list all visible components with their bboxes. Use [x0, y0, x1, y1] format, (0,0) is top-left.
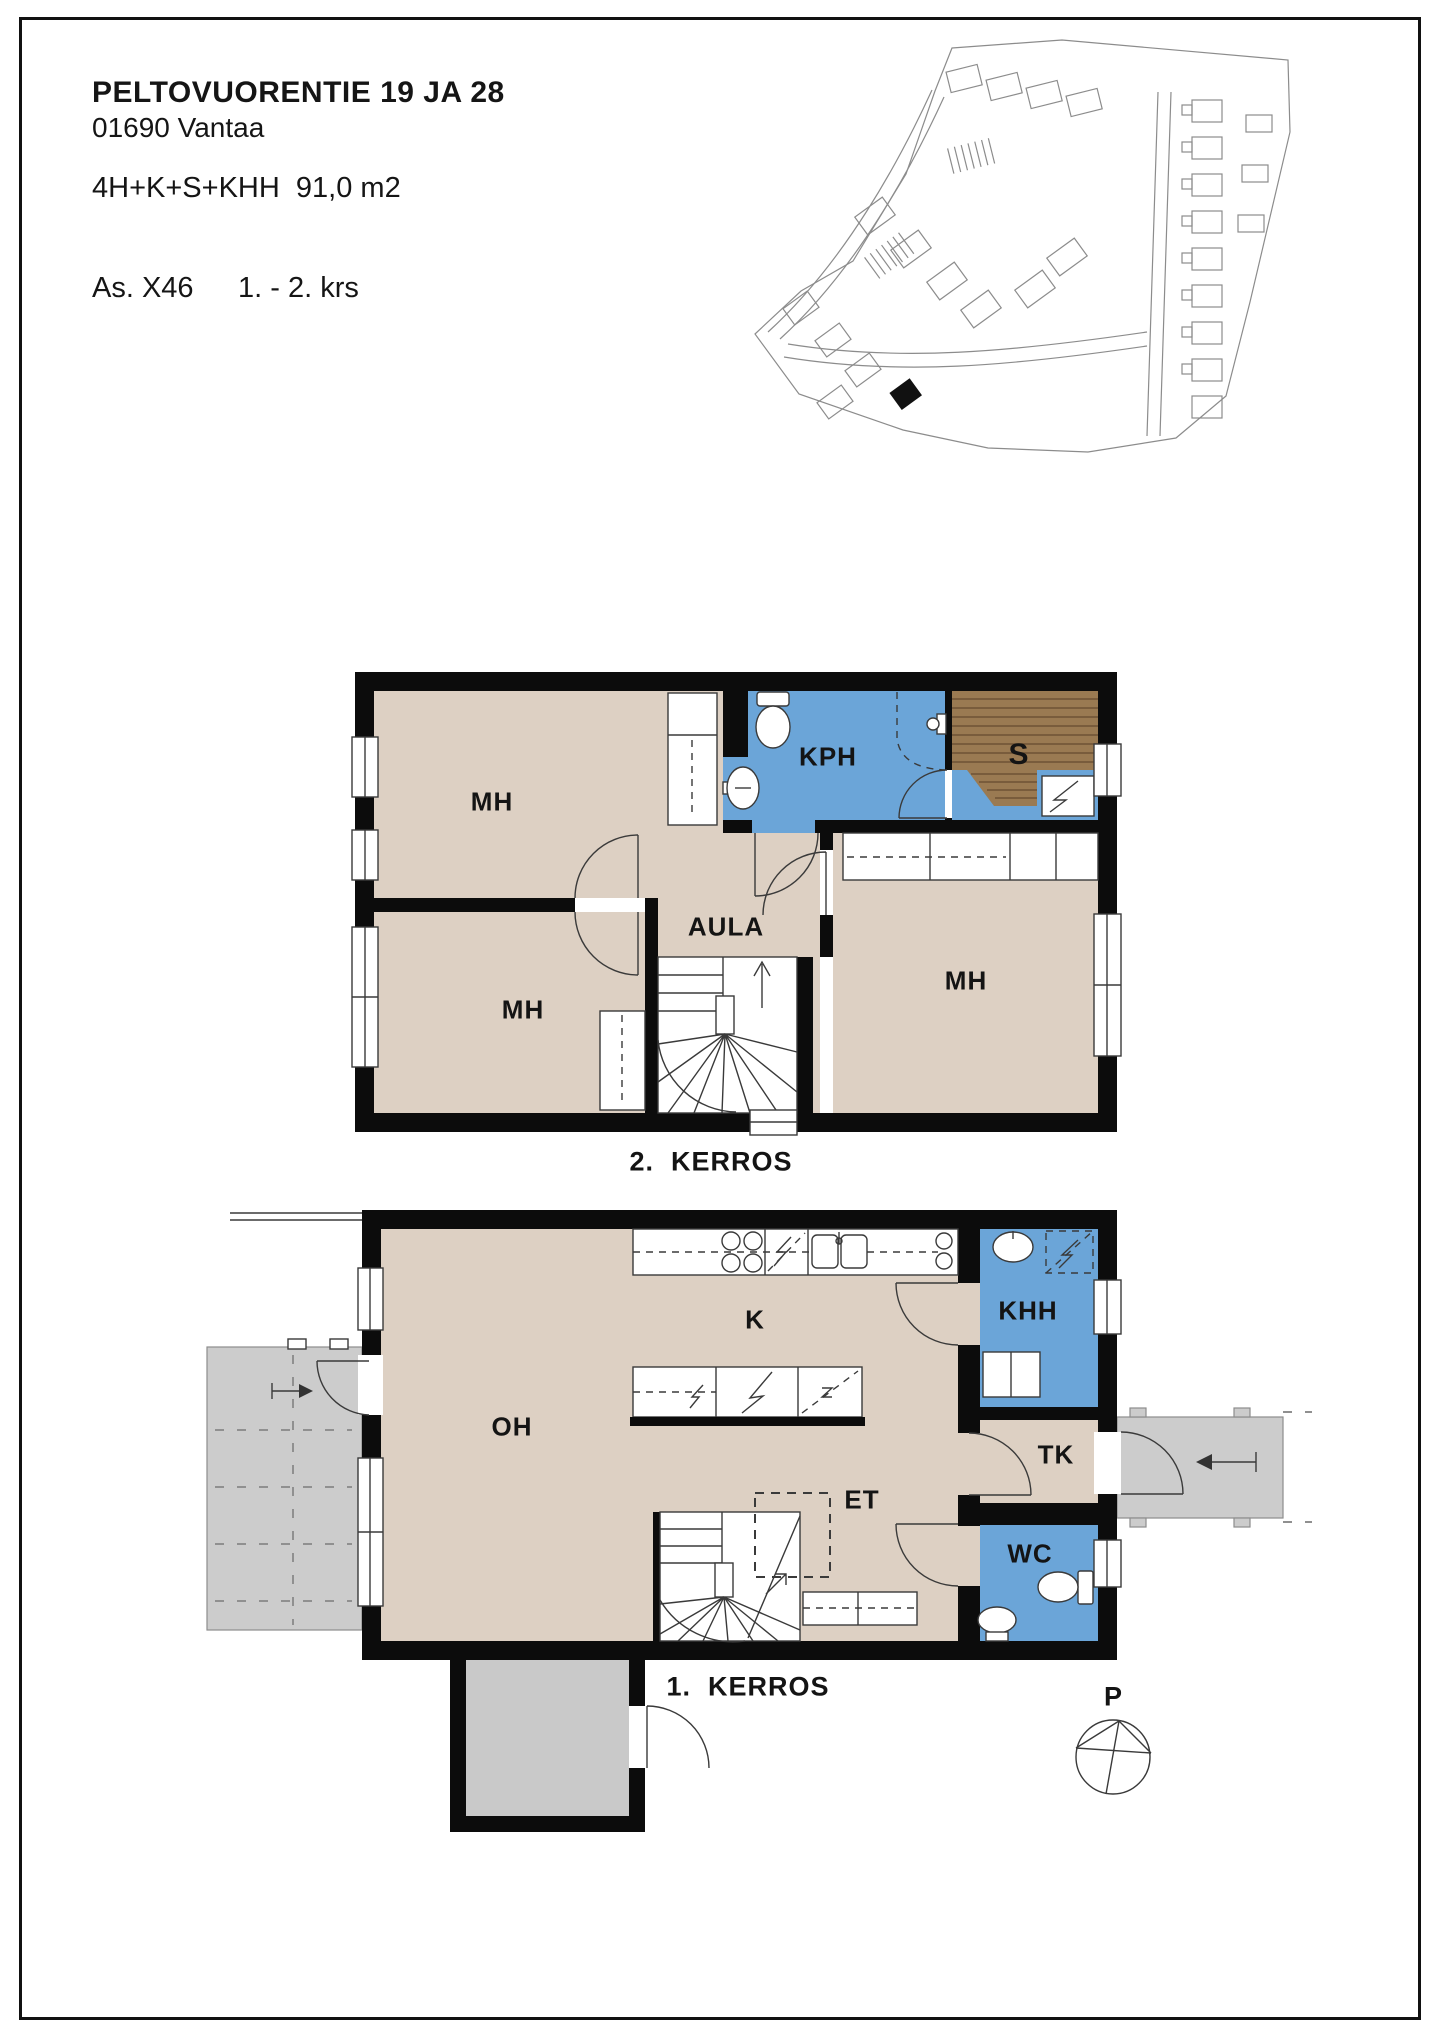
room-label-mh-top: MH [471, 787, 513, 818]
room-label-oh: OH [492, 1412, 533, 1443]
floorplan-1st-floor [207, 1210, 1312, 1832]
room-label-sauna: S [1008, 738, 1029, 772]
entrance-porch [1117, 1408, 1312, 1527]
khh-cabinet [983, 1352, 1040, 1397]
terrace [207, 1339, 362, 1630]
room-label-mh-right: MH [945, 966, 987, 997]
parking-rows-2 [865, 233, 914, 279]
staircase-icon-2f [658, 957, 797, 1113]
compass-icon [1076, 1720, 1151, 1794]
floor-plan-graphics [0, 0, 1440, 2037]
room-label-mh-bottom: MH [502, 995, 544, 1026]
site-map [755, 40, 1290, 452]
sauna-heater-icon [1042, 776, 1094, 816]
room-label-k: K [745, 1305, 765, 1336]
storage-room [450, 1641, 709, 1832]
et-cabinet [803, 1592, 917, 1625]
floorplan-2nd-floor [352, 672, 1121, 1135]
compass-north-label: P [1104, 1682, 1122, 1713]
kitchen-island [630, 1367, 865, 1426]
toilet-icon-2f [756, 692, 790, 748]
khh-sink-icon [993, 1231, 1033, 1262]
room-label-wc: WC [1007, 1539, 1052, 1570]
room-label-aula: AULA [688, 912, 764, 943]
floorplan-document-page: PELTOVUORENTIE 19 JA 28 01690 Vantaa 4H+… [0, 0, 1440, 2037]
floor-2-title: 2. KERROS [629, 1147, 792, 1178]
room-label-tk: TK [1038, 1440, 1075, 1471]
highlighted-unit-marker [889, 378, 922, 410]
room-label-kph: KPH [799, 742, 857, 773]
kitchen-counter [633, 1229, 958, 1275]
roof-overhang-line [230, 1213, 362, 1220]
room-label-et: ET [844, 1485, 879, 1516]
wc-toilet-icon [1038, 1571, 1093, 1604]
floor-1-title: 1. KERROS [666, 1672, 829, 1703]
parking-rows [948, 138, 995, 173]
room-label-khh: KHH [998, 1296, 1057, 1327]
